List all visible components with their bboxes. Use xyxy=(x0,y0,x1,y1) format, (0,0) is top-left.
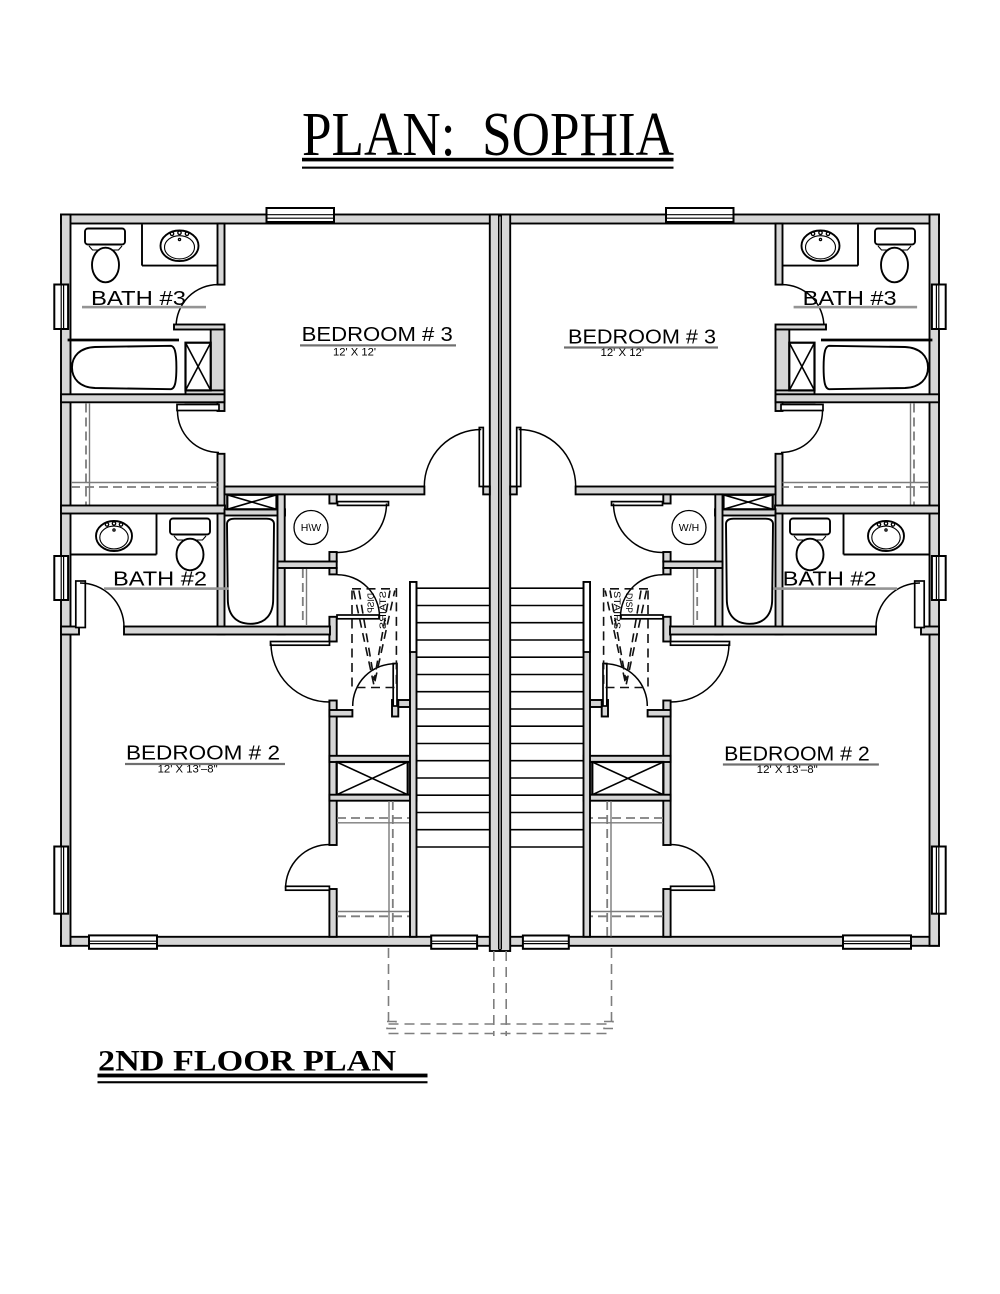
svg-text:W/H: W/H xyxy=(679,522,699,534)
svg-text:BEDROOM # 3: BEDROOM # 3 xyxy=(302,324,453,346)
svg-text:12' X 13'–8": 12' X 13'–8" xyxy=(158,764,218,776)
svg-text:BEDROOM # 2: BEDROOM # 2 xyxy=(126,743,280,765)
svg-text:BATH #2: BATH #2 xyxy=(113,569,207,591)
svg-text:BATH #2: BATH #2 xyxy=(783,569,877,591)
svg-text:DISP: DISP xyxy=(623,593,634,613)
svg-text:BEDROOM # 3: BEDROOM # 3 xyxy=(568,327,716,349)
svg-text:12' X 13'–8": 12' X 13'–8" xyxy=(757,764,818,776)
svg-text:2ND FLOOR PLAN: 2ND FLOOR PLAN xyxy=(98,1045,396,1078)
svg-text:12' X 12': 12' X 12' xyxy=(333,347,376,359)
svg-text:12' X 12': 12' X 12' xyxy=(601,347,645,359)
svg-text:DISP: DISP xyxy=(366,593,377,613)
svg-text:BEDROOM # 2: BEDROOM # 2 xyxy=(724,743,870,765)
svg-text:H\W: H\W xyxy=(301,522,322,534)
